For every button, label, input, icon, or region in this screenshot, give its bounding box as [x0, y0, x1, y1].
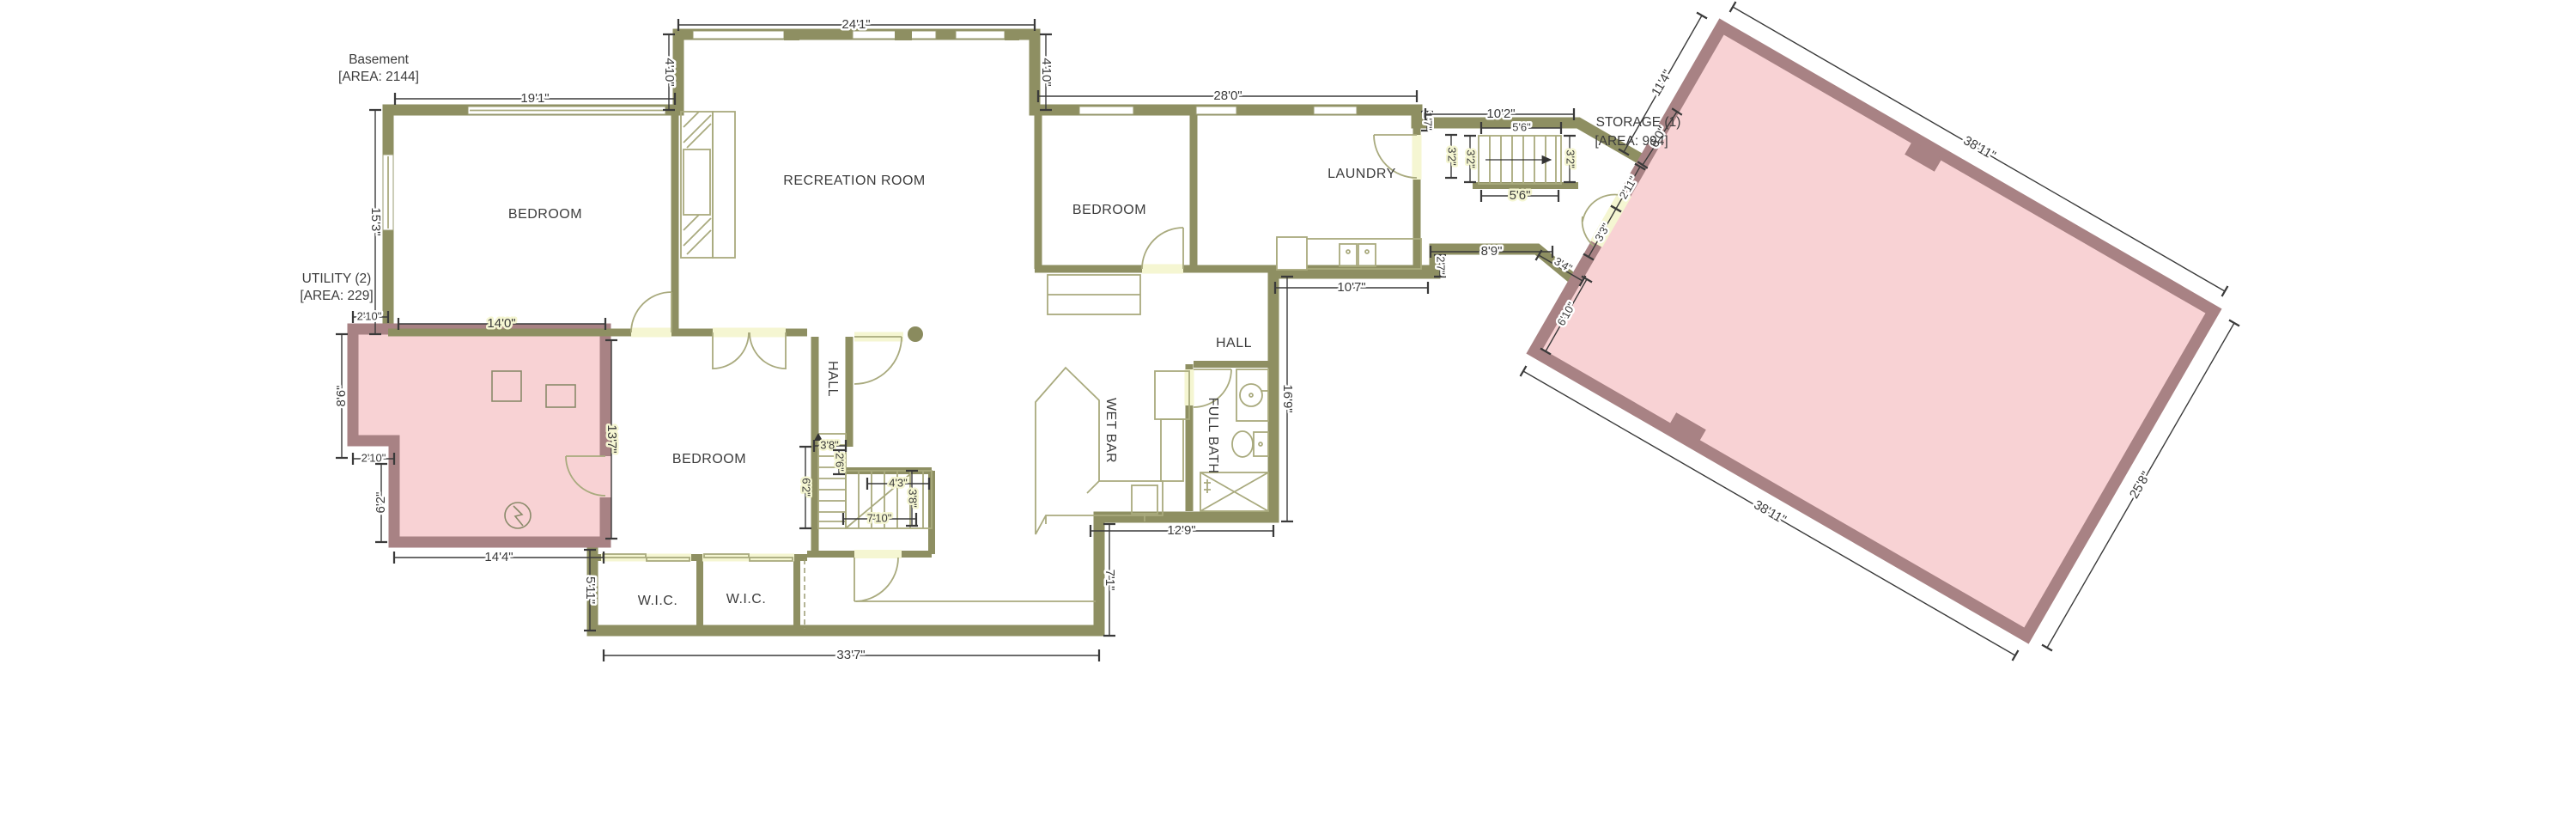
svg-text:8'9": 8'9": [1481, 244, 1503, 259]
dim-stair-width-left: 3'2": [1465, 136, 1478, 182]
utility-area-label: [AREA: 229]: [300, 289, 373, 303]
door-bedroom-left: [631, 292, 671, 332]
svg-text:15'3": 15'3": [368, 207, 383, 235]
svg-text:14'0": 14'0": [487, 316, 515, 331]
window-bedroom-right: [1079, 107, 1133, 114]
plan-title-area: [AREA: 2144]: [338, 70, 419, 84]
dim-utility-left-height: 8'6": [334, 334, 349, 458]
utility-room: [353, 329, 605, 542]
dim-laundry-bottom: 10'7": [1275, 280, 1428, 295]
svg-text:2'10": 2'10": [357, 309, 382, 322]
dim-lower-stair-run: 4'3": [867, 476, 929, 489]
svg-text:2'10": 2'10": [361, 451, 386, 464]
room-label-laundry: LAUNDRY: [1327, 167, 1396, 181]
windows: [383, 29, 1357, 230]
fireplace-shelves: [681, 112, 735, 258]
dim-laundry-step: 2'7": [1435, 255, 1448, 277]
dim-bottom-width: 33'7": [604, 648, 1099, 662]
svg-text:13'7": 13'7": [605, 424, 619, 453]
svg-text:33'7": 33'7": [836, 648, 865, 662]
plan-title: Basement: [349, 52, 409, 67]
toilet-bowl: [1232, 431, 1253, 457]
dim-hall-stair-landing: 2'6": [834, 450, 847, 474]
room-label-hall-right: HALL: [1216, 336, 1252, 350]
utility-outline: [353, 329, 605, 542]
double-door-left-leaf: [713, 332, 749, 369]
floor-plan-canvas: 19'1" 24'1" 4'10" 4'10" 28'0" 15'3" 2'10…: [0, 0, 2576, 835]
door-bedroom-right: [1142, 228, 1183, 269]
svg-text:19'1": 19'1": [520, 91, 549, 106]
svg-text:7'10": 7'10": [867, 511, 892, 524]
floor-plan: 19'1" 24'1" 4'10" 4'10" 28'0" 15'3" 2'10…: [0, 0, 2576, 835]
svg-text:12'9": 12'9": [1167, 523, 1195, 538]
svg-text:10'2": 10'2": [1486, 107, 1515, 121]
window-recreation-2: [853, 31, 936, 39]
svg-text:5'11": 5'11": [583, 576, 598, 604]
door-hall-right: [854, 337, 902, 384]
svg-text:28'0": 28'0": [1213, 88, 1242, 103]
window-recreation-1: [693, 31, 784, 39]
svg-text:3'8": 3'8": [820, 438, 839, 451]
storage-label: STORAGE (1): [1596, 115, 1681, 130]
svg-text:6'2": 6'2": [800, 478, 813, 497]
room-label-wet-bar: WET BAR: [1103, 398, 1118, 463]
toilet-tank: [1254, 432, 1268, 456]
svg-text:3'2": 3'2": [1465, 149, 1478, 168]
svg-text:24'1": 24'1": [841, 17, 870, 32]
svg-text:3'2": 3'2": [1564, 149, 1577, 168]
svg-text:38'11": 38'11": [1960, 133, 1998, 163]
svg-text:11'4": 11'4": [1649, 68, 1675, 99]
svg-text:4'3": 4'3": [889, 476, 908, 489]
room-label-bedroom-right: BEDROOM: [1072, 203, 1146, 217]
door-lower-room: [854, 558, 898, 601]
dim-laundry-door: 3'2": [1446, 135, 1459, 178]
wall-openings: [601, 135, 1417, 558]
svg-text:5'6": 5'6": [1512, 120, 1531, 133]
stairs-top-right: [1479, 136, 1561, 184]
dim-hall-stair-run: 6'2": [800, 447, 813, 528]
room-label-bedroom-center: BEDROOM: [672, 452, 746, 466]
dim-lower-stair-total: 7'10": [843, 511, 916, 524]
dim-bath-wing-bottom: 12'9": [1091, 523, 1273, 538]
dim-utility-notch-width: 2'10": [353, 451, 394, 464]
svg-text:3'2": 3'2": [1446, 147, 1459, 166]
dim-bottom-step-height: 7'1": [1103, 524, 1117, 636]
dim-right-side-height: 16'9": [1280, 277, 1295, 521]
dim-bedroom-left-top: 19'1": [395, 91, 675, 106]
window-laundry-1: [1196, 107, 1236, 114]
svg-text:2'7": 2'7": [1435, 256, 1448, 275]
dim-utility-notch-height: 6'2": [374, 464, 388, 542]
svg-text:7'1": 7'1": [1103, 570, 1117, 591]
dim-utility-bottom-width: 14'4": [394, 550, 604, 564]
room-label-recreation: RECREATION ROOM: [783, 174, 925, 188]
svg-text:2'6": 2'6": [834, 453, 847, 472]
svg-text:25'8": 25'8": [2127, 469, 2154, 501]
svg-text:6'2": 6'2": [374, 492, 388, 514]
svg-text:4'10": 4'10": [1039, 58, 1054, 86]
svg-text:5'6": 5'6": [1510, 188, 1531, 203]
dim-lower-stair-width: 3'8": [907, 471, 920, 526]
svg-text:16'9": 16'9": [1280, 384, 1295, 412]
svg-text:10'7": 10'7": [1337, 280, 1365, 295]
room-label-wic-right: W.I.C.: [726, 592, 767, 606]
storage-area-label: [AREA: 994]: [1595, 134, 1668, 149]
bath-sink: [1240, 384, 1262, 406]
support-column: [908, 326, 923, 342]
dim-recreation-offset-right: 4'10": [1039, 34, 1054, 110]
double-door-right-leaf: [750, 332, 786, 369]
dim-right-wing-top: 28'0": [1038, 88, 1417, 103]
window-recreation-3: [956, 31, 1005, 39]
utility-label: UTILITY (2): [302, 271, 372, 286]
room-label-bedroom-left: BEDROOM: [508, 207, 582, 222]
svg-text:3'8": 3'8": [907, 489, 920, 508]
dim-stair-run-bottom: 5'6": [1481, 188, 1558, 203]
laundry-fixtures: [1277, 237, 1421, 270]
svg-text:8'6": 8'6": [334, 386, 349, 407]
dim-stair-width-right: 3'2": [1564, 136, 1577, 182]
room-label-hall-center: HALL: [825, 361, 840, 397]
window-laundry-2: [1314, 107, 1357, 114]
room-label-full-bath: FULL BATH: [1206, 398, 1220, 474]
svg-text:4'10": 4'10": [662, 58, 677, 86]
room-label-wic-left: W.I.C.: [638, 594, 678, 608]
svg-text:14'4": 14'4": [484, 550, 513, 564]
